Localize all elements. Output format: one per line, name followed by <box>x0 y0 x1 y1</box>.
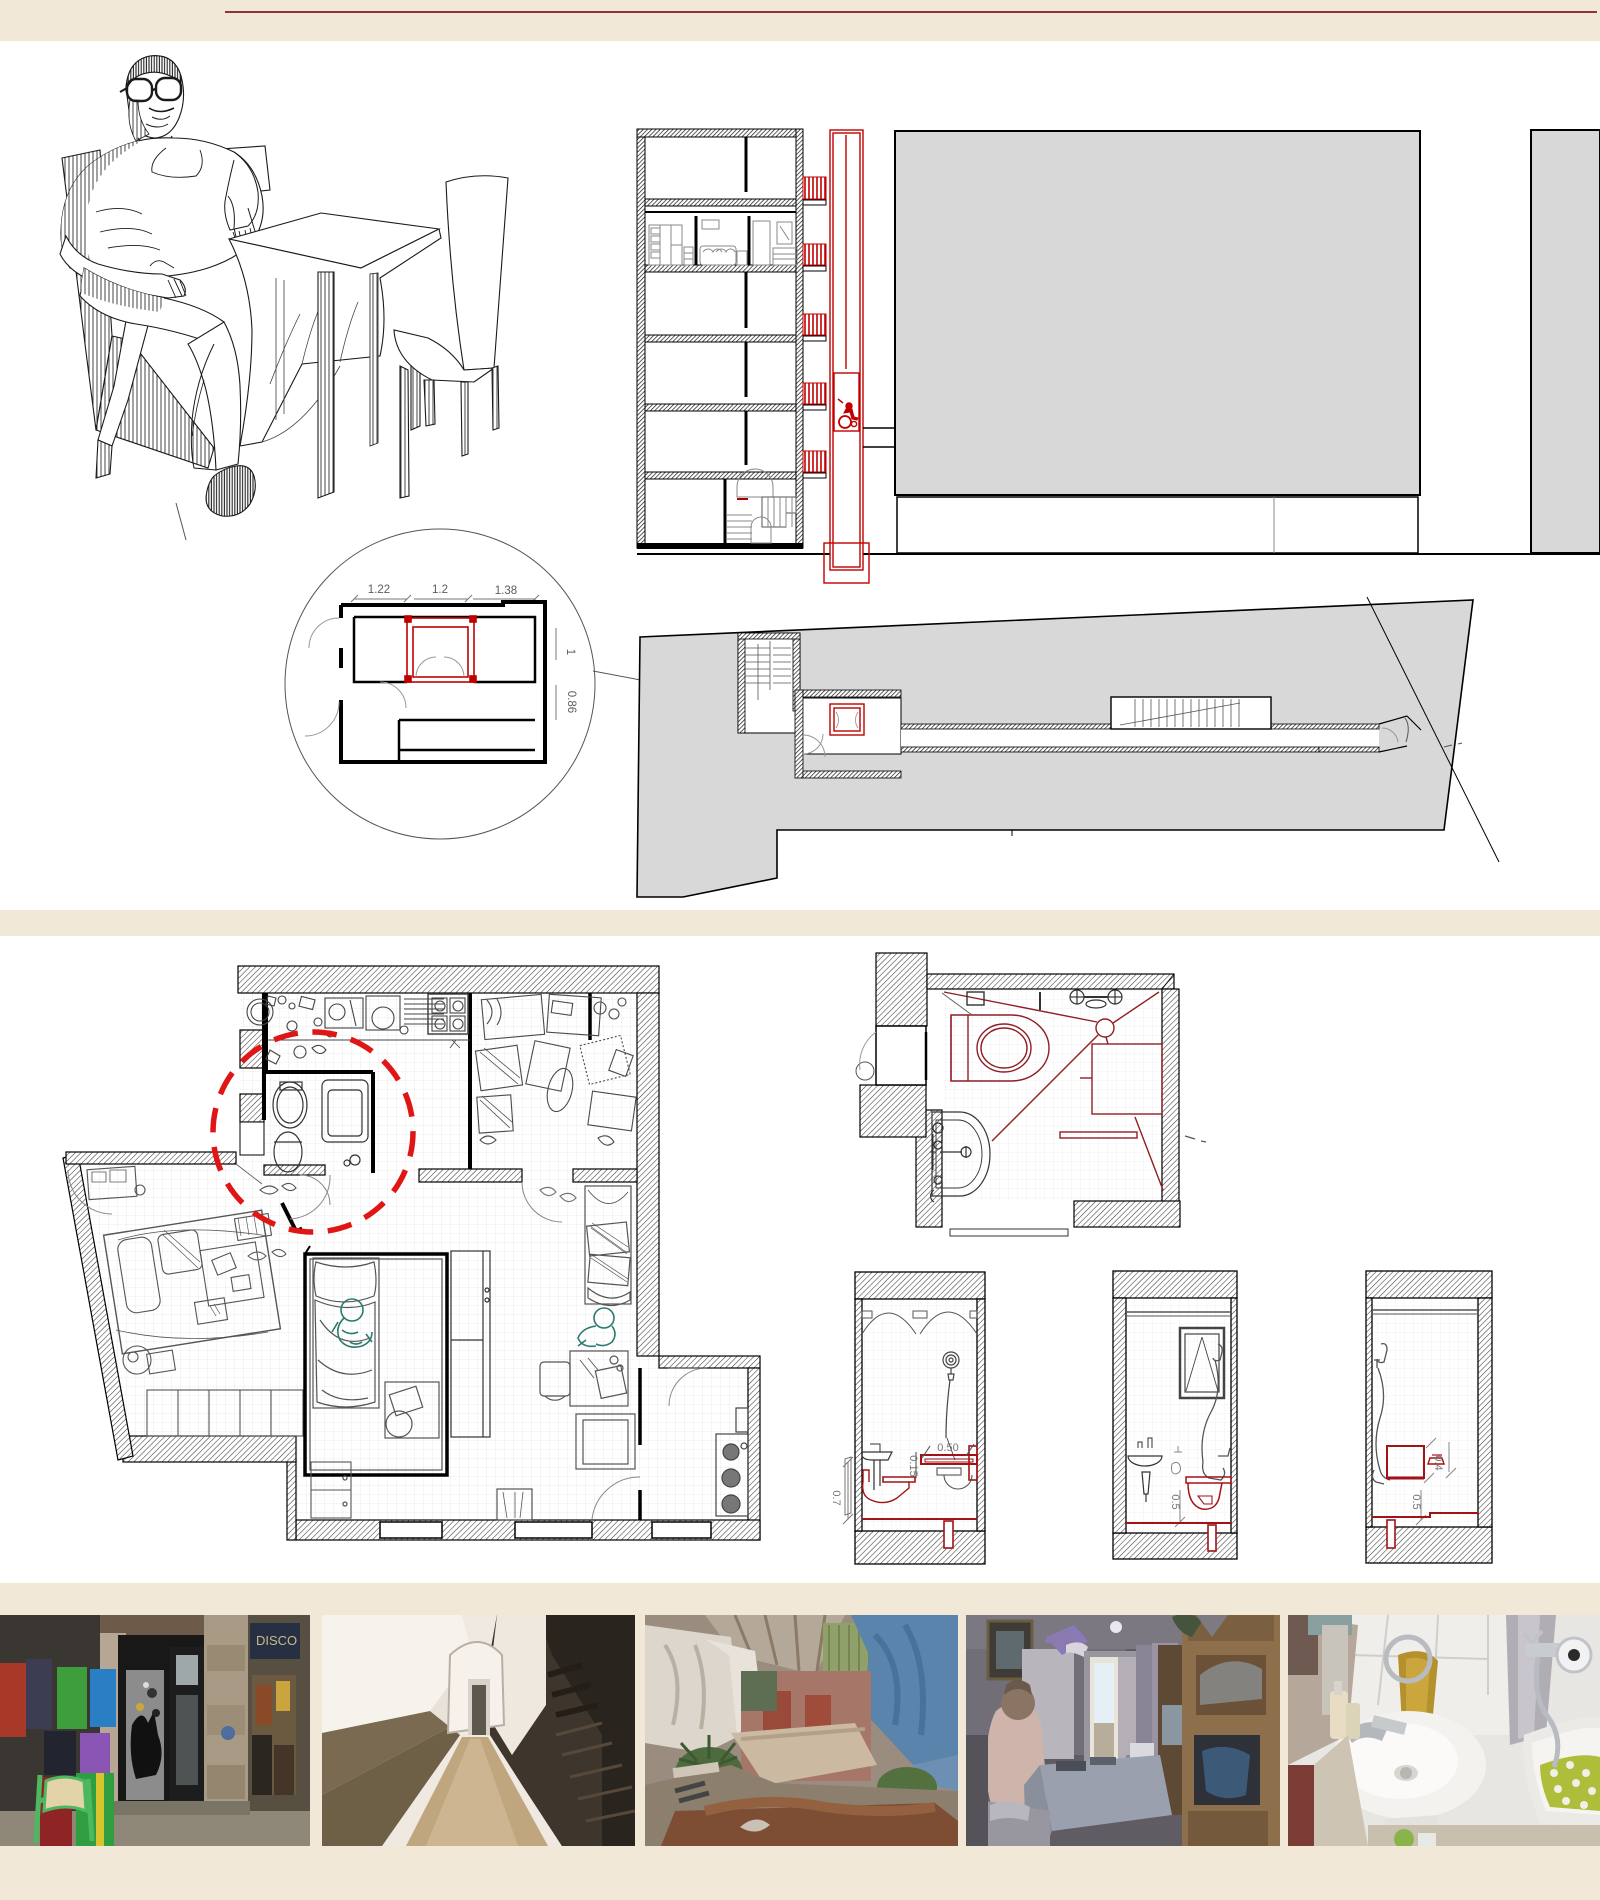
svg-text:1.22: 1.22 <box>368 584 390 596</box>
svg-text:0.86: 0.86 <box>565 691 577 713</box>
svg-text:0.5: 0.5 <box>1169 1494 1181 1509</box>
svg-text:1: 1 <box>564 649 576 655</box>
svg-text:0.50: 0.50 <box>937 1442 958 1454</box>
svg-text:1.2: 1.2 <box>432 584 448 596</box>
svg-text:1.38: 1.38 <box>495 585 517 597</box>
svg-text:0.5: 0.5 <box>1410 1494 1422 1509</box>
svg-text:DISCO: DISCO <box>256 1633 297 1648</box>
svg-text:0.7: 0.7 <box>830 1490 842 1505</box>
svg-text:0.15: 0.15 <box>907 1455 919 1476</box>
svg-text:0.4: 0.4 <box>1432 1455 1444 1470</box>
